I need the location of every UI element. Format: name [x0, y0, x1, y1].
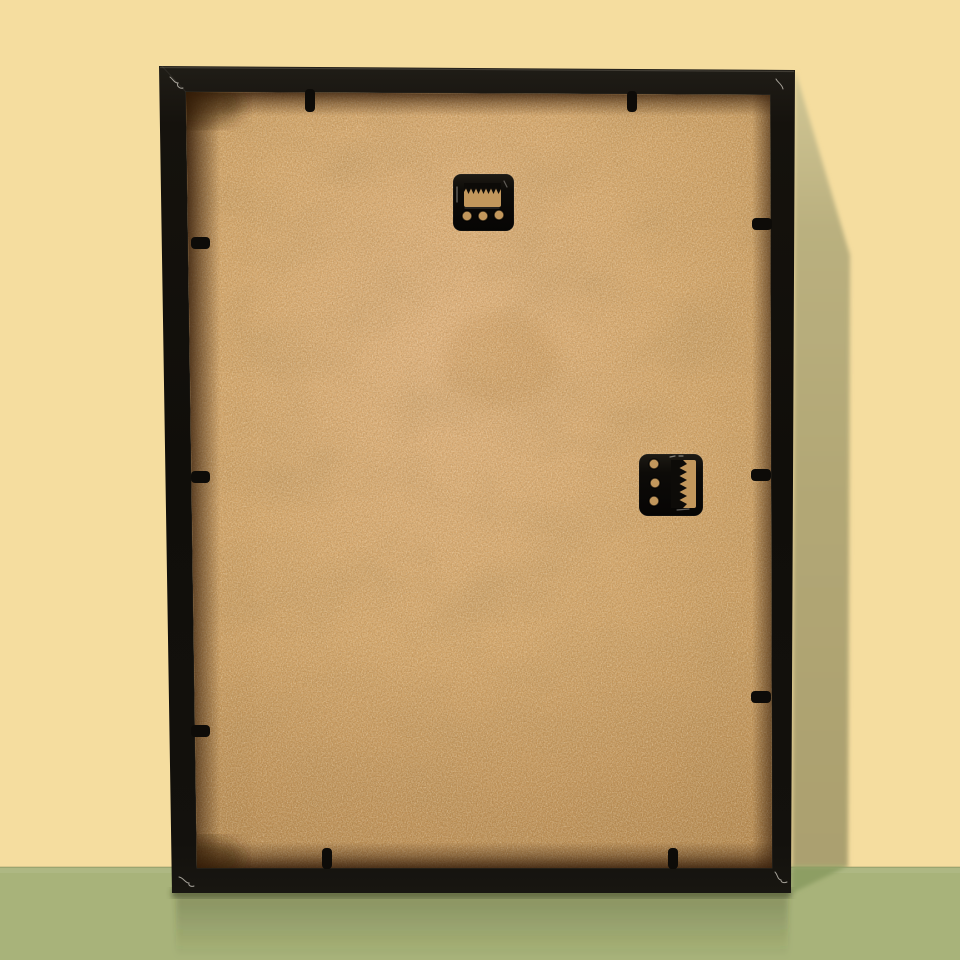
hanger-hole: [494, 210, 504, 220]
retaining-tab-bottom-left: [322, 848, 332, 869]
retaining-tab-right-lower: [751, 691, 771, 703]
recess-shadow-bottom: [188, 842, 772, 868]
frame-floor-reflection: [176, 896, 788, 958]
hanger-hole: [650, 478, 660, 488]
recess-shadow-right: [752, 95, 772, 868]
retaining-tab-top-left: [305, 89, 315, 112]
retaining-tab-right-upper: [752, 218, 772, 230]
retaining-tab-left-lower: [191, 725, 210, 737]
hanger-hole: [462, 211, 472, 221]
hanger-hole: [649, 459, 659, 469]
hanger-hole: [478, 211, 488, 221]
sawtooth-hanger-top: [453, 174, 514, 231]
retaining-tab-left-middle: [191, 471, 210, 483]
hanger-hole: [649, 496, 659, 506]
retaining-tab-bottom-right: [668, 848, 678, 869]
retaining-tab-right-middle: [751, 469, 771, 481]
frame-back-product-photo: [0, 0, 960, 960]
retaining-tab-top-right: [627, 91, 637, 112]
retaining-tab-left-upper: [191, 237, 210, 249]
sawtooth-hanger-side: [639, 454, 703, 516]
